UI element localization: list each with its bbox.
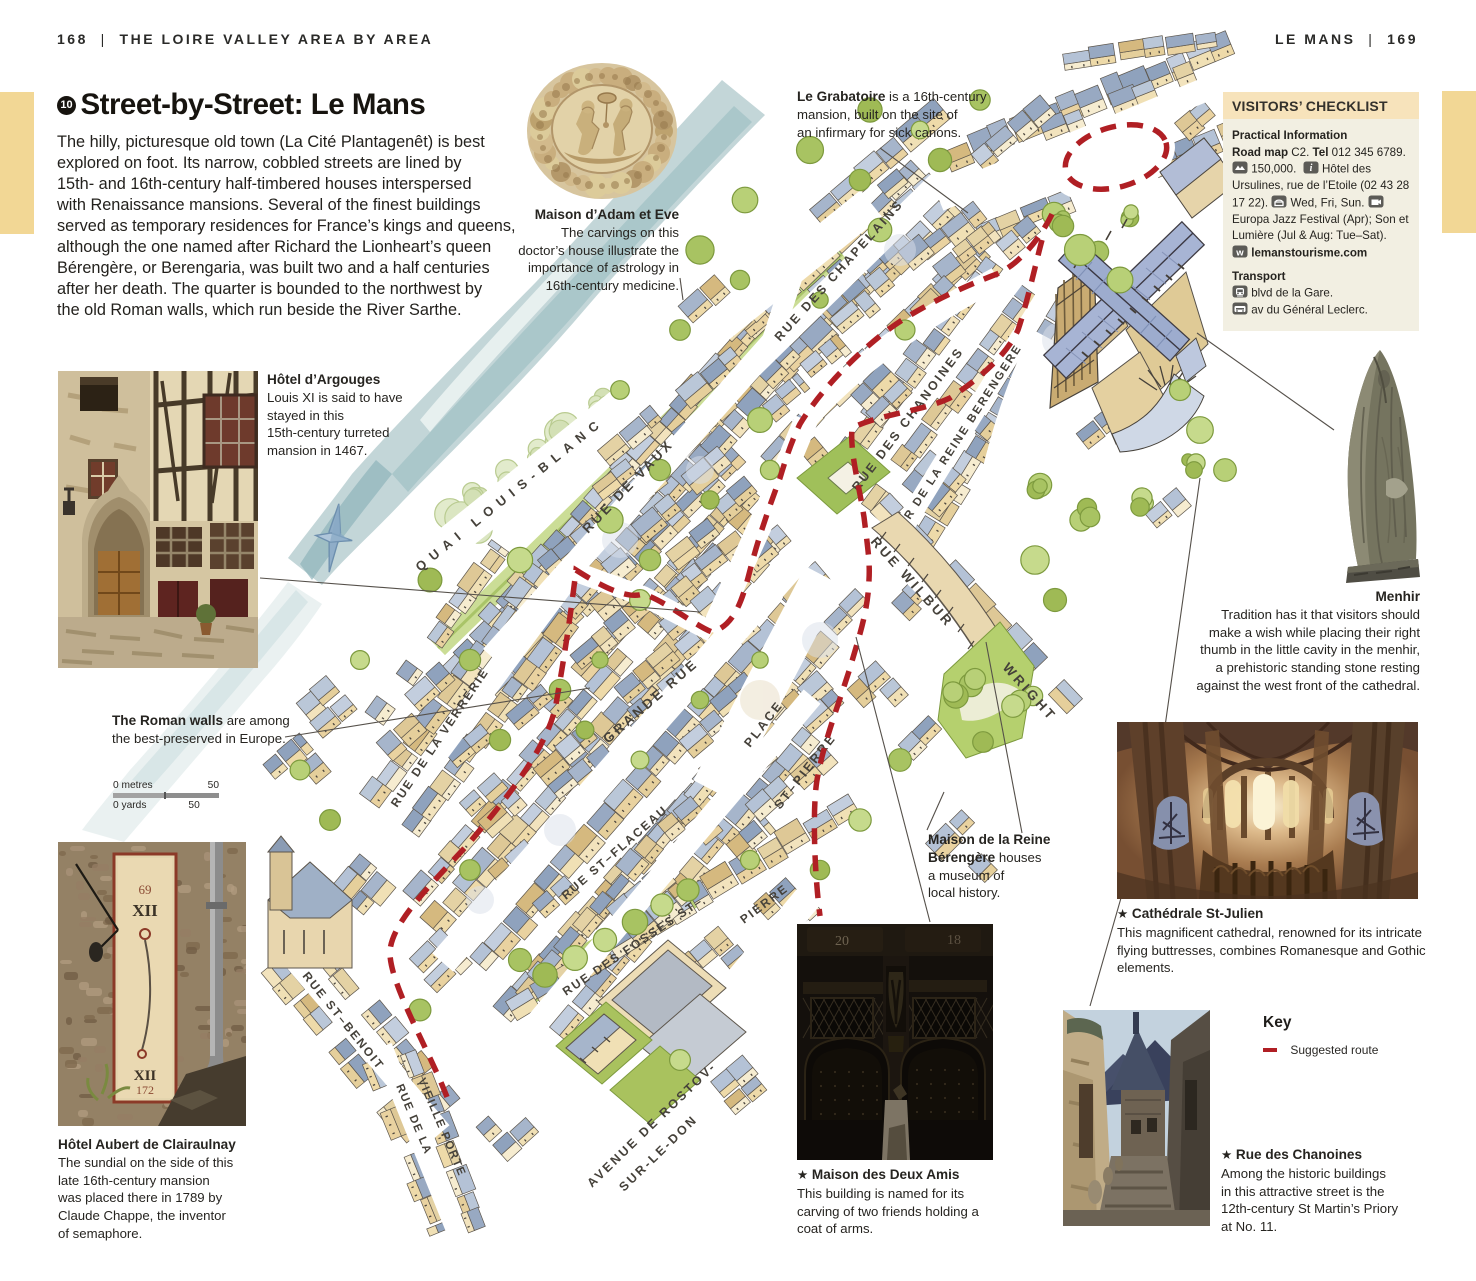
svg-text:XII: XII xyxy=(132,901,158,920)
svg-text:172: 172 xyxy=(136,1083,154,1097)
svg-text:w: w xyxy=(1235,247,1244,258)
svg-text:XII: XII xyxy=(134,1068,157,1084)
svg-text:20: 20 xyxy=(835,934,849,949)
svg-text:i: i xyxy=(1309,163,1312,174)
svg-text:69: 69 xyxy=(139,882,152,897)
svg-text:18: 18 xyxy=(947,933,961,948)
